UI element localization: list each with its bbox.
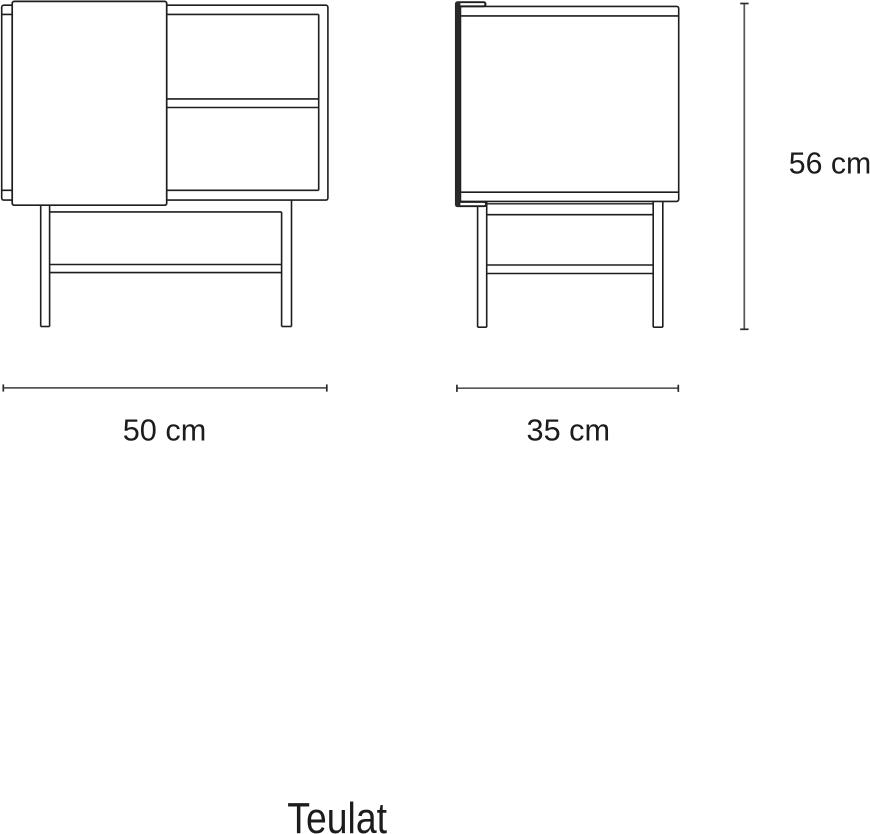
svg-text:50 cm: 50 cm — [123, 413, 207, 447]
svg-text:35 cm: 35 cm — [527, 413, 611, 447]
svg-text:56 cm: 56 cm — [789, 146, 870, 180]
svg-text:Teulat: Teulat — [287, 795, 387, 834]
